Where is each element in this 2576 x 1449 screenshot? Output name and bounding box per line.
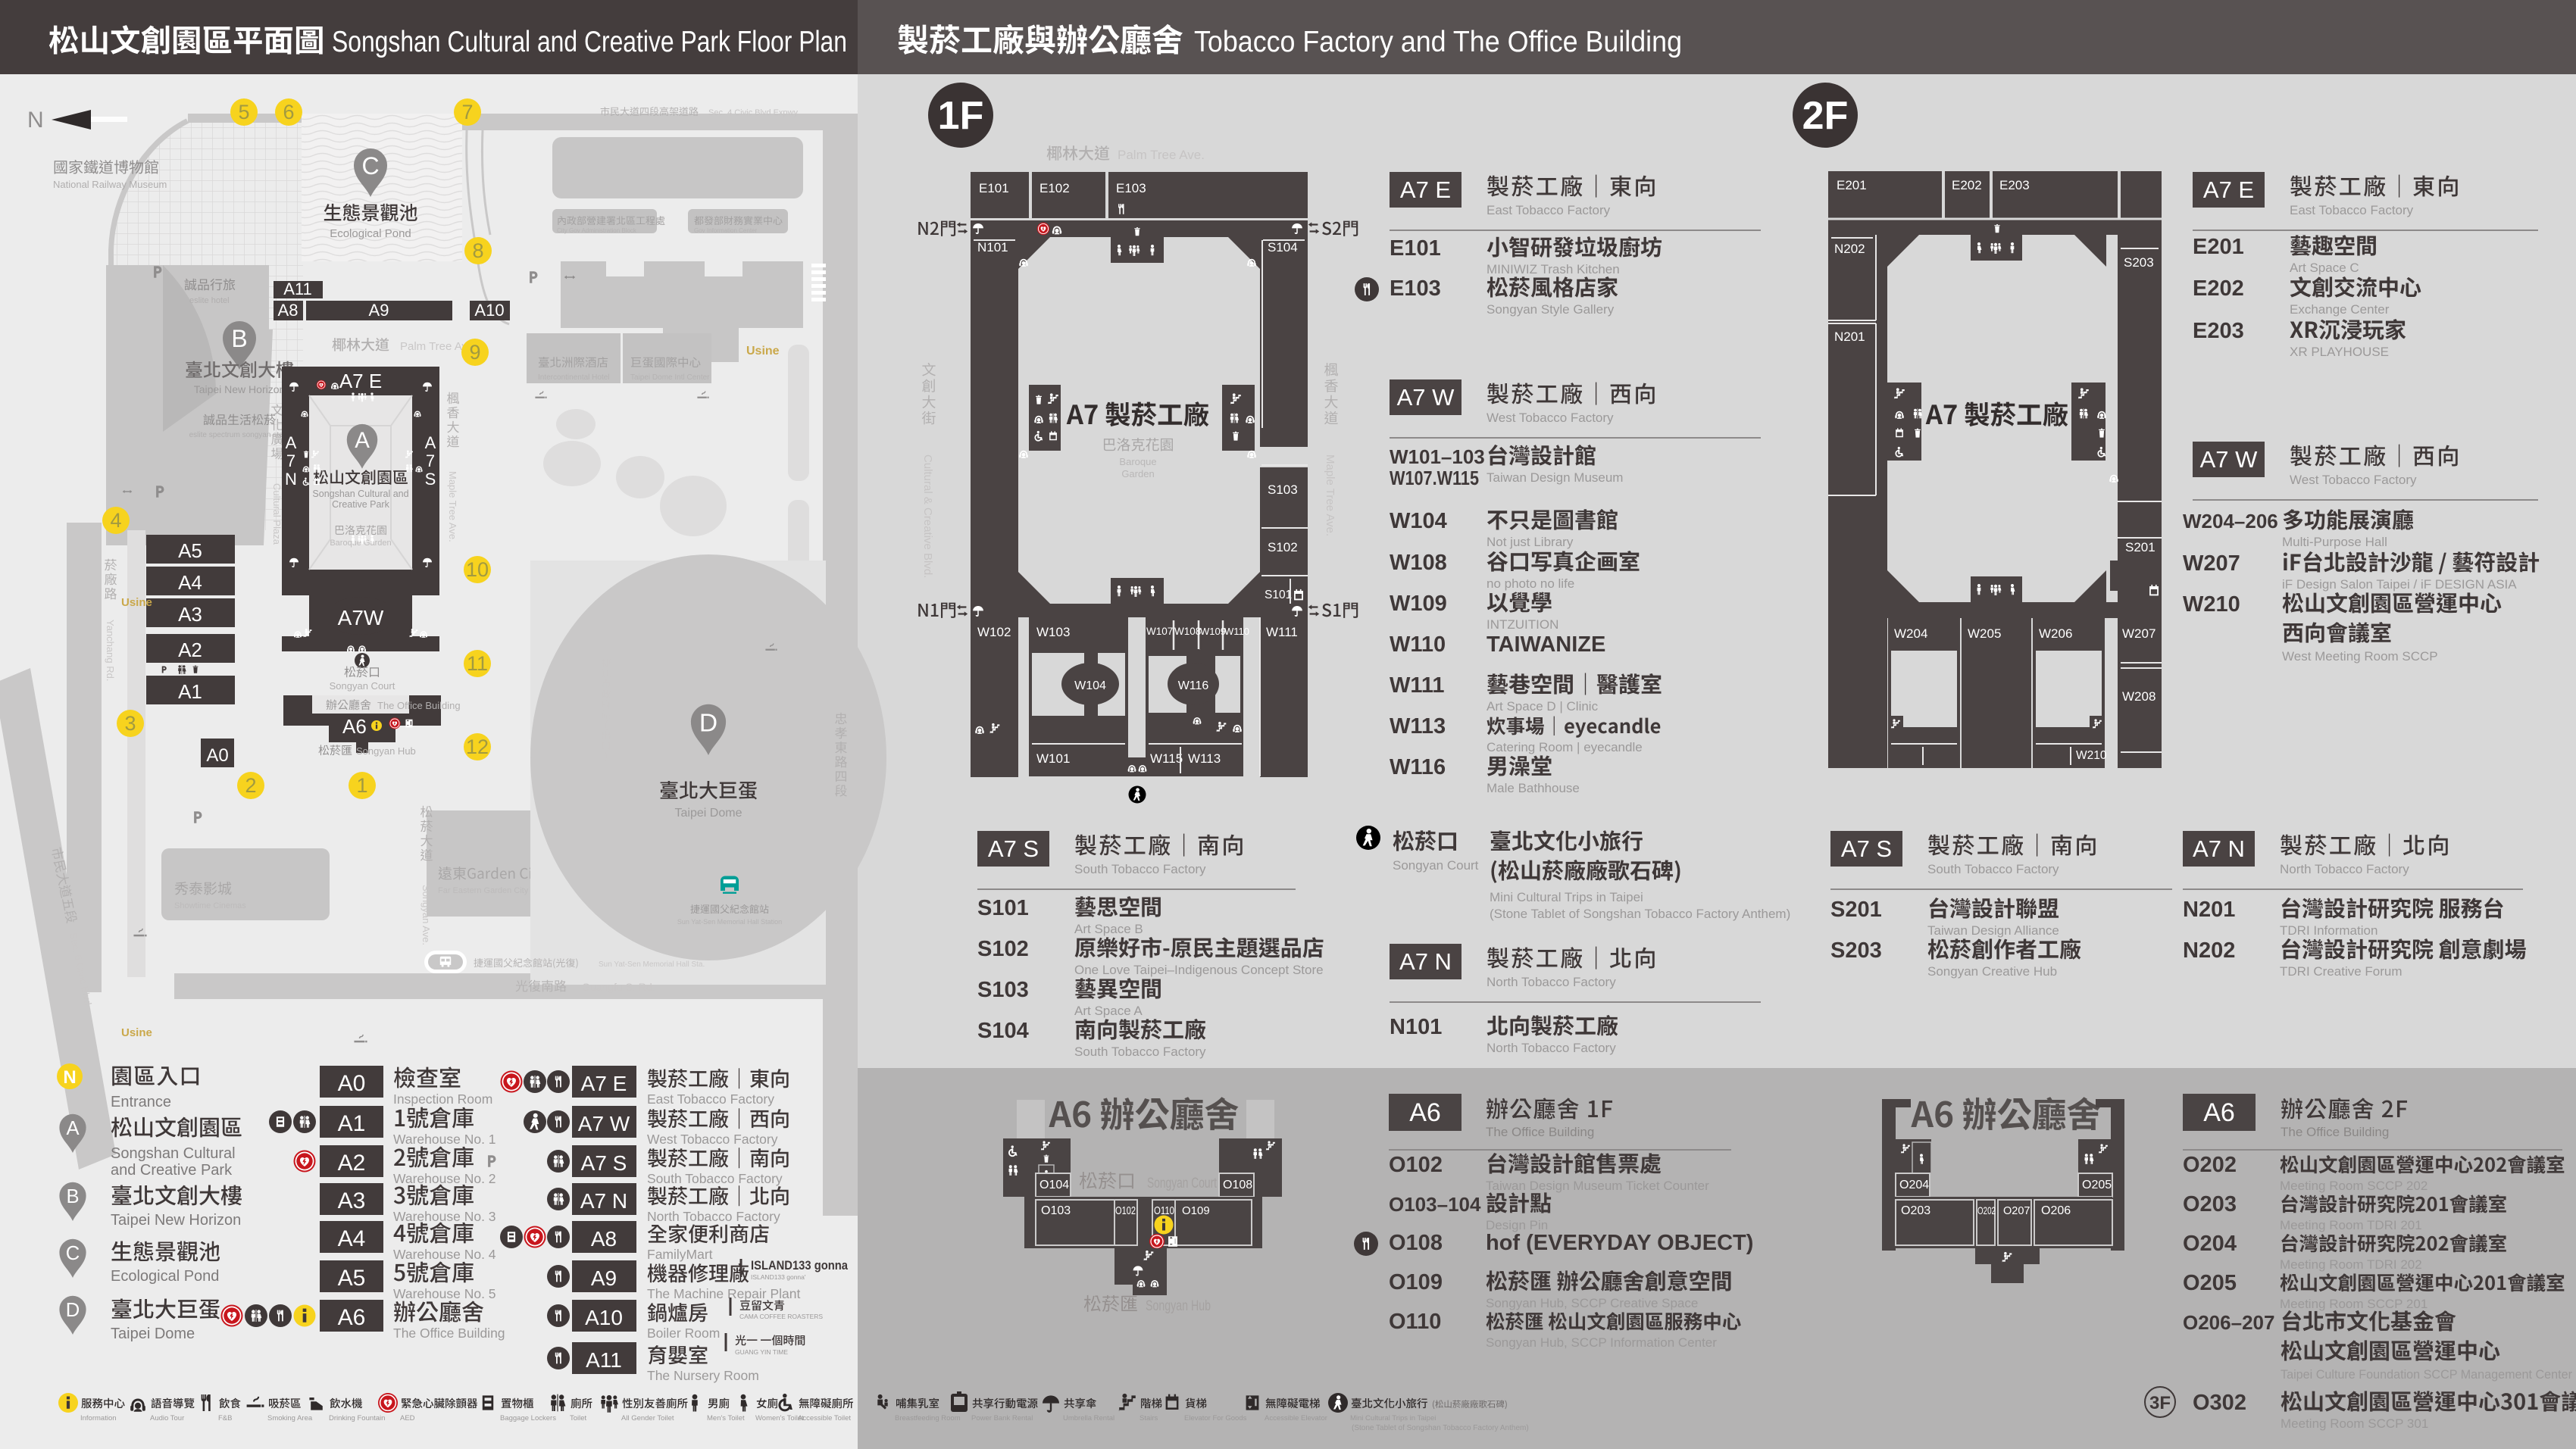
svg-text:East Tobacco Factory: East Tobacco Factory xyxy=(647,1091,774,1107)
svg-text:W206: W206 xyxy=(2039,626,2072,641)
svg-text:A7 E: A7 E xyxy=(1400,176,1451,203)
svg-text:North Tobacco Factory: North Tobacco Factory xyxy=(1487,1041,1616,1055)
svg-text:W113: W113 xyxy=(1390,714,1446,739)
svg-text:The Office Building: The Office Building xyxy=(1486,1125,1594,1139)
svg-text:Songshan Cultural and Creative: Songshan Cultural and Creative Park Floo… xyxy=(332,26,847,58)
svg-text:Songyan Hub, SCCP Creative Spa: Songyan Hub, SCCP Creative Space xyxy=(1486,1296,1698,1310)
svg-text:Usine: Usine xyxy=(121,1026,152,1039)
svg-text:Power Bank Rental: Power Bank Rental xyxy=(971,1414,1033,1422)
svg-text:N: N xyxy=(63,1067,76,1088)
svg-text:E201: E201 xyxy=(1837,178,1867,192)
svg-text:2F: 2F xyxy=(1802,94,1849,138)
svg-text:Inspection Room: Inspection Room xyxy=(393,1091,492,1107)
svg-text:Warehouse No. 1: Warehouse No. 1 xyxy=(393,1132,496,1147)
svg-text:A4: A4 xyxy=(338,1226,366,1251)
svg-text:2: 2 xyxy=(245,774,256,797)
svg-text:Umbrella Rental: Umbrella Rental xyxy=(1063,1414,1114,1422)
svg-text:One Love Taipei–Indigenous Con: One Love Taipei–Indigenous Concept Store xyxy=(1074,963,1324,977)
svg-text:E101: E101 xyxy=(979,181,1009,195)
svg-text:W104: W104 xyxy=(1390,509,1447,533)
svg-text:N: N xyxy=(285,470,297,489)
svg-text:W116: W116 xyxy=(1178,679,1209,692)
svg-text:Breastfeeding Room: Breastfeeding Room xyxy=(895,1414,961,1422)
svg-text:The Office Building: The Office Building xyxy=(377,700,461,711)
svg-text:O206–207: O206–207 xyxy=(2183,1311,2274,1334)
svg-text:O109: O109 xyxy=(1389,1270,1443,1294)
svg-text:S201: S201 xyxy=(1830,898,1882,922)
svg-text:Meeting Room TDRI 202: Meeting Room TDRI 202 xyxy=(2280,1257,2422,1272)
svg-text:Usine: Usine xyxy=(121,596,152,609)
svg-text:Taipei Culture Foundation SCCP: Taipei Culture Foundation SCCP Managemen… xyxy=(2281,1367,2572,1382)
svg-text:F&B: F&B xyxy=(218,1414,232,1422)
svg-text:Maple Tree Ave.: Maple Tree Ave. xyxy=(447,471,458,542)
svg-text:N101: N101 xyxy=(1390,1015,1442,1039)
svg-text:A6: A6 xyxy=(338,1305,366,1330)
svg-text:S102: S102 xyxy=(977,937,1029,961)
svg-text:Baggage Lockers: Baggage Lockers xyxy=(500,1414,556,1422)
svg-text:W113: W113 xyxy=(1188,751,1221,766)
svg-text:A7 E: A7 E xyxy=(581,1072,627,1095)
svg-text:O110: O110 xyxy=(1389,1310,1441,1334)
svg-text:Songyan Court: Songyan Court xyxy=(1393,858,1479,873)
svg-text:4: 4 xyxy=(110,509,121,532)
svg-text:Taipei New Horizon: Taipei New Horizon xyxy=(194,383,286,395)
svg-text:Far Eastern Garden City: Far Eastern Garden City xyxy=(438,886,529,895)
svg-text:O102: O102 xyxy=(1115,1205,1136,1217)
svg-text:Intercontinental Hotel: Intercontinental Hotel xyxy=(538,373,610,382)
svg-text:A7 N: A7 N xyxy=(1399,948,1452,975)
svg-text:N201: N201 xyxy=(1834,329,1865,344)
svg-text:Taiwan Design Alliance: Taiwan Design Alliance xyxy=(1927,923,2059,938)
svg-text:Meeting Room SCCP 201: Meeting Room SCCP 201 xyxy=(2280,1297,2428,1311)
svg-text:S103: S103 xyxy=(1268,482,1298,497)
svg-text:W108: W108 xyxy=(1390,551,1447,575)
svg-text:Usine: Usine xyxy=(746,345,780,358)
svg-text:Male Bathhouse: Male Bathhouse xyxy=(1487,781,1580,795)
svg-text:S104: S104 xyxy=(977,1019,1029,1043)
svg-text:S101: S101 xyxy=(1265,589,1292,601)
svg-text:A11: A11 xyxy=(283,279,312,298)
svg-text:Songyan Creative Hub: Songyan Creative Hub xyxy=(1927,964,2057,979)
svg-text:A4: A4 xyxy=(178,571,202,594)
svg-text:W111: W111 xyxy=(1390,673,1445,698)
svg-text:W102: W102 xyxy=(977,625,1011,639)
svg-text:O202: O202 xyxy=(1977,1204,1996,1216)
svg-text:Songyan Hub: Songyan Hub xyxy=(1146,1298,1211,1314)
svg-text:A7 E: A7 E xyxy=(2203,176,2254,203)
svg-text:City Gov Administration Block: City Gov Administration Block xyxy=(557,227,637,234)
svg-text:12: 12 xyxy=(466,735,489,758)
svg-text:E201: E201 xyxy=(2193,235,2244,259)
svg-text:O202: O202 xyxy=(2183,1153,2237,1177)
svg-text:W103: W103 xyxy=(1036,625,1070,639)
svg-text:C: C xyxy=(361,152,379,180)
svg-text:Taipei Dome: Taipei Dome xyxy=(111,1326,195,1342)
svg-text:A5: A5 xyxy=(178,539,202,562)
svg-text:Ecological Pond: Ecological Pond xyxy=(111,1268,219,1285)
svg-text:B: B xyxy=(66,1186,79,1207)
svg-text:E103: E103 xyxy=(1390,276,1441,301)
svg-text:7: 7 xyxy=(461,101,473,123)
svg-text:A3: A3 xyxy=(178,603,202,626)
svg-text:Stairs: Stairs xyxy=(1140,1414,1158,1422)
svg-text:Showtime Cinemas: Showtime Cinemas xyxy=(174,901,246,910)
svg-text:Songyan Ave.: Songyan Ave. xyxy=(420,885,432,945)
svg-text:MINIWIZ Trash Kitchen: MINIWIZ Trash Kitchen xyxy=(1487,262,1620,276)
svg-text:A: A xyxy=(425,433,436,452)
svg-text:O108: O108 xyxy=(1223,1179,1252,1191)
svg-text:(Stone Tablet of Songshan Toba: (Stone Tablet of Songshan Tobacco Factor… xyxy=(1490,907,1790,921)
svg-text:Warehouse No. 4: Warehouse No. 4 xyxy=(393,1247,496,1262)
svg-text:Catering Room | eyecandle: Catering Room | eyecandle xyxy=(1487,740,1643,754)
svg-text:South Tobacco Factory: South Tobacco Factory xyxy=(1074,1045,1206,1059)
svg-text:North Tobacco Factory: North Tobacco Factory xyxy=(2280,862,2409,876)
svg-text:7: 7 xyxy=(426,451,435,470)
svg-text:INTZUITION: INTZUITION xyxy=(1487,617,1558,632)
svg-text:8: 8 xyxy=(472,239,483,262)
svg-text:Tobacco Factory and The Office: Tobacco Factory and The Office Building xyxy=(1194,26,1682,58)
svg-text:O207: O207 xyxy=(2003,1205,2030,1217)
svg-text:W107.W115: W107.W115 xyxy=(1390,467,1479,489)
svg-text:A5: A5 xyxy=(338,1266,366,1291)
svg-text:Songyan Court: Songyan Court xyxy=(330,680,395,692)
svg-text:West Tobacco Factory: West Tobacco Factory xyxy=(647,1132,778,1147)
svg-text:A7 N: A7 N xyxy=(580,1189,627,1213)
svg-text:A9: A9 xyxy=(369,301,389,320)
svg-text:D: D xyxy=(699,710,717,738)
svg-text:Entrance: Entrance xyxy=(111,1094,171,1110)
svg-text:W107: W107 xyxy=(1146,626,1173,637)
svg-text:A8: A8 xyxy=(278,301,299,320)
svg-text:Audio Tour: Audio Tour xyxy=(150,1414,184,1422)
svg-text:3: 3 xyxy=(124,712,136,735)
svg-text:7: 7 xyxy=(286,451,295,470)
svg-text:A9: A9 xyxy=(591,1266,617,1290)
svg-text:W111: W111 xyxy=(1266,625,1298,639)
svg-text:O102: O102 xyxy=(1389,1153,1443,1177)
svg-text:A6: A6 xyxy=(342,715,367,738)
svg-text:East Tobacco Factory: East Tobacco Factory xyxy=(2290,203,2414,217)
svg-text:O103: O103 xyxy=(1041,1204,1071,1217)
svg-text:W204: W204 xyxy=(1894,626,1927,641)
svg-text:W108: W108 xyxy=(1174,626,1201,637)
svg-text:TDRI Information: TDRI Information xyxy=(2280,923,2377,938)
svg-text:Gov Information Center: Gov Information Center xyxy=(694,227,757,234)
svg-text:iF Design Salon Taipei / iF DE: iF Design Salon Taipei / iF DESIGN ASIA xyxy=(2282,577,2517,592)
svg-text:Elevator For Goods: Elevator For Goods xyxy=(1184,1414,1247,1422)
svg-text:The Machine Repair Plant: The Machine Repair Plant xyxy=(647,1286,800,1301)
svg-text:S101: S101 xyxy=(977,896,1029,920)
svg-text:9: 9 xyxy=(469,341,480,364)
svg-text:Sun Yat-Sen Memorial Hall Sta.: Sun Yat-Sen Memorial Hall Sta. xyxy=(599,960,705,969)
svg-text:Ecological Pond: Ecological Pond xyxy=(330,227,411,240)
svg-text:A11: A11 xyxy=(586,1348,622,1372)
svg-text:W101–103: W101–103 xyxy=(1390,445,1485,468)
svg-text:The Office Building: The Office Building xyxy=(393,1326,505,1341)
svg-text:Songyan Court: Songyan Court xyxy=(1147,1176,1218,1191)
svg-text:South Tobacco Factory: South Tobacco Factory xyxy=(1927,862,2059,876)
svg-text:West Tobacco Factory: West Tobacco Factory xyxy=(1487,411,1614,425)
svg-text:Garden: Garden xyxy=(1121,468,1154,479)
svg-text:Art Space C: Art Space C xyxy=(2290,261,2359,275)
svg-text:W109: W109 xyxy=(1200,626,1226,637)
svg-text:Yanchang Rd.: Yanchang Rd. xyxy=(105,620,116,681)
svg-text:A7 S: A7 S xyxy=(581,1151,627,1175)
svg-text:O204: O204 xyxy=(1899,1179,1929,1191)
svg-text:W204–206: W204–206 xyxy=(2183,510,2278,532)
svg-text:Not just Library: Not just Library xyxy=(1487,535,1574,549)
svg-text:B: B xyxy=(231,325,247,352)
svg-text:A7 S: A7 S xyxy=(988,835,1039,862)
svg-text:W205: W205 xyxy=(1968,626,2001,641)
svg-text:A1: A1 xyxy=(178,680,202,703)
svg-text:Accessible Toilet: Accessible Toilet xyxy=(798,1414,851,1422)
svg-text:Art Space B: Art Space B xyxy=(1074,922,1143,936)
svg-text:Creative Park: Creative Park xyxy=(332,499,389,510)
svg-text:A7 W: A7 W xyxy=(1397,384,1455,411)
svg-text:W207: W207 xyxy=(2183,551,2240,576)
svg-text:S203: S203 xyxy=(1830,938,1882,963)
svg-text:Drinking Fountain: Drinking Fountain xyxy=(329,1414,385,1422)
svg-text:O205: O205 xyxy=(2082,1179,2112,1191)
svg-text:eslite spectrum songyan store: eslite spectrum songyan store xyxy=(189,431,290,439)
svg-text:5: 5 xyxy=(238,101,249,123)
svg-text:A6: A6 xyxy=(1409,1098,1441,1127)
svg-text:Women's Toilet: Women's Toilet xyxy=(755,1414,804,1422)
svg-text:A0: A0 xyxy=(206,745,228,766)
svg-text:N202: N202 xyxy=(1834,242,1865,256)
svg-text:Accessible Elevator: Accessible Elevator xyxy=(1265,1414,1327,1422)
svg-text:A2: A2 xyxy=(178,639,202,661)
svg-text:O205: O205 xyxy=(2183,1271,2237,1295)
svg-text:1: 1 xyxy=(356,774,367,797)
svg-text:Meeting Room SCCP 202: Meeting Room SCCP 202 xyxy=(2280,1179,2428,1193)
svg-text:O109: O109 xyxy=(1182,1204,1210,1217)
svg-text:W210: W210 xyxy=(2183,592,2240,617)
svg-text:A7W: A7W xyxy=(338,606,384,629)
svg-text:TAIWANIZE: TAIWANIZE xyxy=(1487,632,1605,657)
svg-text:10: 10 xyxy=(466,558,489,581)
svg-text:Art Space D | Clinic: Art Space D | Clinic xyxy=(1487,699,1599,714)
svg-text:CAMA COFFEE ROASTERS: CAMA COFFEE ROASTERS xyxy=(739,1313,823,1320)
svg-text:E203: E203 xyxy=(2193,319,2244,343)
svg-text:Exchange Center: Exchange Center xyxy=(2290,302,2390,317)
svg-text:W109: W109 xyxy=(1390,592,1447,616)
svg-text:Baroque: Baroque xyxy=(1119,456,1156,467)
svg-text:XR PLAYHOUSE: XR PLAYHOUSE xyxy=(2290,345,2389,359)
svg-text:FamilyMart: FamilyMart xyxy=(647,1247,713,1262)
svg-text:Guangfu S. Rd.: Guangfu S. Rd. xyxy=(582,981,655,993)
svg-text:O108: O108 xyxy=(1389,1231,1443,1255)
svg-text:A: A xyxy=(286,433,297,452)
svg-text:West Meeting Room SCCP: West Meeting Room SCCP xyxy=(2282,649,2438,664)
svg-text:E101: E101 xyxy=(1390,236,1441,261)
svg-text:Toilet: Toilet xyxy=(570,1414,587,1422)
svg-text:Taipei Dome Intl Center: Taipei Dome Intl Center xyxy=(630,373,710,382)
svg-text:A: A xyxy=(66,1118,80,1139)
svg-text:AED: AED xyxy=(400,1414,415,1422)
svg-text:Taipei New Horizon: Taipei New Horizon xyxy=(111,1212,241,1229)
svg-text:W101: W101 xyxy=(1036,751,1070,766)
svg-text:Songshan Cultural: Songshan Cultural xyxy=(111,1145,236,1162)
svg-text:ISLAND133 gonna': ISLAND133 gonna' xyxy=(751,1273,806,1281)
svg-text:Warehouse No. 2: Warehouse No. 2 xyxy=(393,1171,496,1186)
svg-text:North Tobacco Factory: North Tobacco Factory xyxy=(1487,975,1616,989)
svg-text:Warehouse No. 3: Warehouse No. 3 xyxy=(393,1209,496,1224)
svg-text:A7 N: A7 N xyxy=(2193,835,2245,862)
svg-text:Cultural Plaza: Cultural Plaza xyxy=(271,483,283,545)
svg-text:The Office Building: The Office Building xyxy=(2281,1125,2389,1139)
svg-text:N: N xyxy=(27,108,44,133)
svg-text:Information: Information xyxy=(80,1414,117,1422)
svg-text:Palm Tree Ave.: Palm Tree Ave. xyxy=(1118,148,1205,162)
svg-text:GUANG YIN TIME: GUANG YIN TIME xyxy=(735,1348,788,1356)
svg-text:Men's Toilet: Men's Toilet xyxy=(707,1414,745,1422)
svg-text:W104: W104 xyxy=(1074,679,1106,692)
svg-text:A10: A10 xyxy=(585,1306,623,1329)
svg-text:Taiwan Design Museum Ticket Co: Taiwan Design Museum Ticket Counter xyxy=(1486,1179,1709,1193)
svg-text:O203: O203 xyxy=(1901,1204,1930,1217)
svg-text:Multi-Purpose Hall: Multi-Purpose Hall xyxy=(2282,535,2387,549)
svg-text:N202: N202 xyxy=(2183,938,2235,963)
svg-text:A6: A6 xyxy=(2203,1098,2235,1127)
svg-text:North Tobacco Factory: North Tobacco Factory xyxy=(647,1209,780,1224)
svg-text:E103: E103 xyxy=(1116,181,1146,195)
svg-text:(Stone Tablet of Songshan Toba: (Stone Tablet of Songshan Tobacco Factor… xyxy=(1352,1424,1529,1432)
svg-text:National Railway Museum: National Railway Museum xyxy=(53,179,167,190)
svg-text:South Tobacco Factory: South Tobacco Factory xyxy=(1074,862,1206,876)
svg-text:A8: A8 xyxy=(591,1227,617,1251)
svg-text:O103–104: O103–104 xyxy=(1389,1193,1481,1216)
svg-text:3F: 3F xyxy=(2149,1393,2171,1413)
svg-text:Songyan Hub, SCCP Information: Songyan Hub, SCCP Information Center xyxy=(1486,1335,1717,1350)
svg-text:Meeting Room TDRI 201: Meeting Room TDRI 201 xyxy=(2280,1218,2422,1232)
svg-text:E203: E203 xyxy=(1999,178,2030,192)
svg-text:Sec. 4 Civic Blvd Expwy: Sec. 4 Civic Blvd Expwy xyxy=(708,108,798,117)
svg-text:South Tobacco Factory: South Tobacco Factory xyxy=(647,1171,783,1186)
svg-text:E202: E202 xyxy=(2193,276,2244,301)
svg-text:W207: W207 xyxy=(2122,626,2156,641)
svg-text:no photo no life: no photo no life xyxy=(1487,576,1574,591)
svg-text:O206: O206 xyxy=(2041,1204,2071,1217)
svg-text:The Nursery Room: The Nursery Room xyxy=(647,1368,759,1383)
svg-text:W210: W210 xyxy=(2076,749,2107,762)
svg-text:O302: O302 xyxy=(2193,1391,2246,1415)
svg-text:Boiler Room: Boiler Room xyxy=(647,1326,720,1341)
svg-text:S103: S103 xyxy=(977,978,1029,1002)
svg-text:Maple Tree Ave.: Maple Tree Ave. xyxy=(1324,454,1336,536)
svg-text:6: 6 xyxy=(283,101,294,123)
svg-text:O203: O203 xyxy=(2183,1192,2237,1216)
svg-text:A3: A3 xyxy=(338,1188,366,1213)
svg-text:TDRI Creative Forum: TDRI Creative Forum xyxy=(2280,964,2402,979)
svg-text:Songshan Cultural and: Songshan Cultural and xyxy=(312,489,408,499)
svg-text:Songyan Hub: Songyan Hub xyxy=(356,745,416,757)
svg-text:N201: N201 xyxy=(2183,898,2235,922)
svg-text:A0: A0 xyxy=(338,1071,366,1096)
svg-text:S: S xyxy=(425,470,436,489)
svg-text:W208: W208 xyxy=(2122,689,2156,704)
svg-text:and Creative Park: and Creative Park xyxy=(111,1162,233,1179)
svg-text:A1: A1 xyxy=(338,1111,366,1136)
svg-text:Taiwan Design Museum: Taiwan Design Museum xyxy=(1487,470,1623,485)
svg-text:Meeting Room SCCP 301: Meeting Room SCCP 301 xyxy=(2281,1416,2428,1431)
svg-text:Songyan Style Gallery: Songyan Style Gallery xyxy=(1487,302,1615,317)
svg-text:A10: A10 xyxy=(474,301,504,320)
svg-text:A2: A2 xyxy=(338,1151,366,1176)
svg-text:Mini Cultural Trips in Taipei: Mini Cultural Trips in Taipei xyxy=(1490,890,1643,904)
svg-text:Sun Yat-Sen Memorial Hall Stat: Sun Yat-Sen Memorial Hall Station xyxy=(677,918,782,926)
svg-text:C: C xyxy=(66,1243,80,1264)
svg-text:W115: W115 xyxy=(1150,751,1183,766)
svg-text:11: 11 xyxy=(467,652,488,675)
svg-text:S203: S203 xyxy=(2124,255,2154,270)
svg-text:Warehouse No. 5: Warehouse No. 5 xyxy=(393,1286,496,1301)
svg-text:A7 W: A7 W xyxy=(578,1112,630,1135)
svg-text:Mini Cultural Trips in Taipei: Mini Cultural Trips in Taipei xyxy=(1350,1414,1436,1422)
svg-text:A: A xyxy=(355,428,370,453)
svg-text:E202: E202 xyxy=(1952,178,1982,192)
svg-text:West Tobacco Factory: West Tobacco Factory xyxy=(2290,473,2417,487)
svg-text:S201: S201 xyxy=(2125,540,2156,554)
svg-text:O104: O104 xyxy=(1039,1179,1069,1191)
svg-text:W116: W116 xyxy=(1390,755,1446,779)
svg-text:S104: S104 xyxy=(1268,240,1298,255)
svg-text:A7 E: A7 E xyxy=(339,370,382,392)
svg-text:E102: E102 xyxy=(1039,181,1070,195)
svg-text:1F: 1F xyxy=(938,94,984,138)
svg-text:All Gender Toilet: All Gender Toilet xyxy=(621,1414,674,1422)
svg-text:D: D xyxy=(66,1300,80,1321)
svg-text:W110: W110 xyxy=(1390,632,1446,657)
svg-text:Smoking Area: Smoking Area xyxy=(267,1414,313,1422)
svg-text:W110: W110 xyxy=(1224,626,1249,637)
svg-text:S102: S102 xyxy=(1268,540,1298,554)
svg-text:East Tobacco Factory: East Tobacco Factory xyxy=(1487,203,1611,217)
svg-text:Art Space A: Art Space A xyxy=(1074,1004,1143,1018)
svg-text:A7 W: A7 W xyxy=(2200,446,2259,473)
svg-text:N101: N101 xyxy=(977,240,1008,255)
svg-text:hof (EVERYDAY OBJECT): hof (EVERYDAY OBJECT) xyxy=(1486,1231,1753,1255)
svg-text:eslite hotel: eslite hotel xyxy=(189,296,230,305)
svg-text:A7 S: A7 S xyxy=(1841,835,1892,862)
svg-text:Baroque Garden: Baroque Garden xyxy=(330,539,391,548)
svg-text:ISLAND133 gonna: ISLAND133 gonna xyxy=(751,1258,848,1273)
svg-text:Cultural & Creative Blvd.: Cultural & Creative Blvd. xyxy=(921,454,934,578)
svg-text:Taipei Dome: Taipei Dome xyxy=(675,807,742,820)
svg-text:O204: O204 xyxy=(2183,1232,2237,1256)
